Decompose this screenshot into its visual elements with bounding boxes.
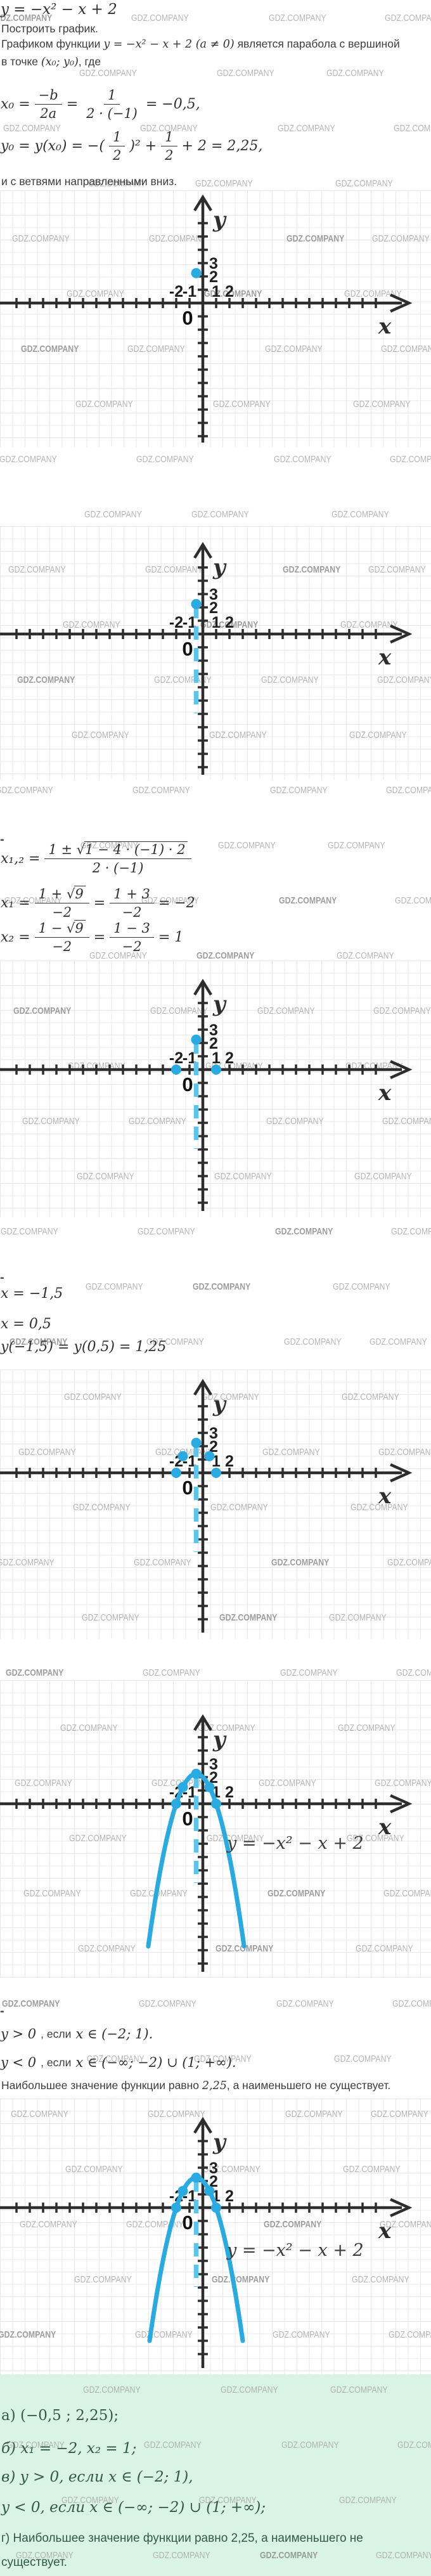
svg-text:3: 3: [209, 586, 218, 604]
graph-description-line: Графиком функции y = −x² − x + 2 (a ≠ 0)…: [1, 37, 400, 51]
extra-x-right: x = 0,5: [1, 1316, 51, 1332]
svg-text:y: y: [212, 555, 227, 580]
sqrt-prefix: 1 ± √: [48, 842, 85, 857]
fraction-denominator: −2: [48, 903, 75, 920]
fraction-numerator: 1: [161, 129, 177, 146]
plot-vertex: yx0-2-11223: [0, 190, 431, 447]
task-line: Построить график.: [1, 22, 98, 36]
formula-x12-lhs: x₁,₂ =: [1, 851, 40, 867]
svg-text:x: x: [378, 645, 392, 670]
graph-description-math: y = −x² − x + 2 (a ≠ 0): [103, 38, 234, 51]
answer-g-line-2: существует.: [1, 2556, 67, 2570]
fraction: 12 · (−1): [82, 87, 141, 121]
svg-text:x: x: [378, 1815, 392, 1840]
fraction: 1 − √9 −2: [35, 921, 89, 954]
svg-text:2: 2: [225, 614, 234, 631]
fraction: 12: [109, 129, 125, 163]
svg-text:y: y: [212, 2130, 227, 2155]
max-value-text-1: Наибольшее значение функции равно: [1, 2079, 202, 2092]
svg-text:y = −x² − x + 2: y = −x² − x + 2: [226, 1834, 364, 1853]
graph-description-text-2: является парабола с вершиной: [235, 37, 400, 50]
answer-a: а) (−0,5 ; 2,25);: [1, 2407, 119, 2424]
answer-v: в) y > 0, если x ∈ (−2; 1),: [1, 2469, 193, 2485]
fraction-numerator: 1 − 3: [110, 921, 154, 938]
graph-description-text-1: Графиком функции: [1, 37, 103, 50]
svg-text:-1: -1: [183, 283, 196, 301]
plot-extra-points: yx0-2-11223: [0, 1369, 431, 1639]
sqrt-radicand: 1 − 4 · (−1) · 2: [84, 841, 187, 857]
vertex-point-line: в точке (x₀; y₀), где: [1, 55, 101, 68]
extra-x-left: x = −1,5: [1, 1286, 63, 1302]
vertex-point-math: (x₀; y₀): [41, 56, 79, 68]
sqrt-radicand: 9: [74, 920, 85, 936]
svg-text:3: 3: [209, 1756, 218, 1773]
svg-text:x: x: [378, 2218, 392, 2244]
inequality: y < 0: [1, 2055, 36, 2070]
formula-x0-lhs: x₀ =: [1, 96, 30, 112]
plot-roots: yx0-2-11223: [0, 961, 431, 1217]
fraction: −b2a: [35, 87, 62, 121]
plot-parabola: yx0-2-11223y = −x² − x + 2: [0, 1680, 431, 1978]
fraction-denominator: 2 · (−1): [89, 859, 148, 876]
answer-v2: y < 0, если x ∈ (−∞; −2) ∪ (1; +∞);: [1, 2499, 266, 2516]
fraction: 1 ± √1 − 4 · (−1) · 2 2 · (−1): [44, 842, 191, 876]
svg-text:3: 3: [209, 1425, 218, 1442]
svg-text:0: 0: [182, 1073, 193, 1096]
svg-text:y: y: [212, 1392, 227, 1417]
extra-y-values: y(−1,5) = y(0,5) = 1,25: [1, 1339, 166, 1355]
plot-final: yx0-2-11223y = −x² − x + 2: [0, 2099, 431, 2374]
svg-text:y: y: [212, 207, 227, 233]
fraction: 1 + 3−2: [110, 886, 154, 920]
fraction-numerator: 1: [104, 87, 120, 105]
svg-text:2: 2: [225, 283, 234, 301]
svg-text:y: y: [212, 1727, 227, 1752]
formula-x1-lhs: x₁ =: [1, 895, 30, 911]
content-layer: y = −x² − x + 2 Построить график. График…: [0, 0, 431, 2576]
sqrt-radicand: 9: [74, 886, 85, 902]
fraction-denominator: −2: [48, 938, 75, 954]
if-word: , если: [41, 2028, 71, 2041]
svg-text:0: 0: [182, 1808, 193, 1830]
equals-sign: =: [94, 895, 105, 911]
branches-line: и с ветвями направленными вниз.: [1, 175, 177, 188]
fraction-numerator: 1 − √9: [35, 921, 89, 938]
fraction-numerator: −b: [35, 87, 62, 105]
svg-text:2: 2: [225, 1453, 234, 1470]
equation-title: y = −x² − x + 2: [1, 1, 117, 18]
formula-x12: x₁,₂ = 1 ± √1 − 4 · (−1) · 2 2 · (−1): [1, 842, 191, 876]
svg-text:3: 3: [209, 2159, 218, 2177]
svg-text:2: 2: [225, 1049, 234, 1067]
svg-text:2: 2: [225, 1783, 234, 1801]
max-value-number: 2,25: [202, 2080, 227, 2092]
interval: x ∈ (−2; 1).: [75, 2026, 153, 2042]
fraction-denominator: −2: [119, 938, 146, 954]
svg-text:0: 0: [182, 638, 193, 660]
inequality: y > 0: [1, 2026, 36, 2042]
formula-x1: x₁ = 1 + √9 −2 = 1 + 3−2 = −2: [1, 886, 195, 920]
max-value-text-2: , а наименьшего не существует.: [227, 2079, 390, 2092]
formula-y0: y₀ = y(x₀) = −( 12 )² + 12 + 2 = 2,25,: [1, 129, 262, 163]
svg-text:3: 3: [209, 255, 218, 273]
fraction: 12: [161, 129, 177, 163]
svg-text:-2: -2: [169, 1049, 183, 1067]
sqrt-prefix: 1 − √: [39, 921, 75, 936]
vertex-point-text-2: , где: [79, 55, 101, 68]
fraction: 1 + √9 −2: [35, 886, 89, 920]
interval: x ∈ (−∞; −2) ∪ (1; +∞).: [75, 2055, 236, 2070]
list-dash: -: [0, 1271, 4, 1285]
formula-x2: x₂ = 1 − √9 −2 = 1 − 3−2 = 1: [1, 921, 183, 954]
answer-b: б) x₁ = −2, x₂ = 1;: [1, 2440, 136, 2457]
fraction-denominator: 2a: [36, 105, 60, 121]
equals-sign: =: [94, 929, 105, 945]
svg-text:0: 0: [182, 2211, 193, 2234]
positive-interval-line: y > 0, если x ∈ (−2; 1).: [1, 2026, 153, 2042]
fraction-denominator: 2: [161, 146, 177, 163]
sqrt-prefix: 1 + √: [39, 886, 75, 902]
svg-text:x: x: [378, 1080, 392, 1106]
formula-x2-lhs: x₂ =: [1, 929, 30, 945]
fraction-numerator: 1 ± √1 − 4 · (−1) · 2: [44, 842, 191, 859]
svg-text:x: x: [378, 1484, 392, 1509]
fraction-denominator: −2: [119, 903, 146, 920]
svg-text:2: 2: [225, 2187, 234, 2205]
plot-symmetry-axis: yx0-2-11223: [0, 526, 431, 780]
svg-text:-2: -2: [169, 614, 183, 631]
fraction-numerator: 1 + 3: [110, 886, 154, 903]
negative-interval-line: y < 0, если x ∈ (−∞; −2) ∪ (1; +∞).: [1, 2055, 236, 2070]
svg-text:3: 3: [209, 1021, 218, 1039]
formula-y0-part-2: )² +: [129, 138, 157, 154]
svg-text:x: x: [378, 314, 392, 339]
solution-page: GDZ.COMPANYGDZ.COMPANYGDZ.COMPANYGDZ.COM…: [0, 0, 431, 2576]
fraction-denominator: 2: [109, 146, 125, 163]
formula-x2-result: = 1: [158, 929, 183, 945]
if-word: , если: [41, 2056, 71, 2069]
svg-text:y: y: [212, 992, 227, 1017]
formula-x1-result: = −2: [158, 895, 195, 911]
svg-text:-2: -2: [169, 283, 183, 301]
list-dash: -: [0, 2004, 4, 2019]
fraction-denominator: 2 · (−1): [82, 105, 141, 121]
fraction-numerator: 1: [109, 129, 125, 146]
svg-text:0: 0: [182, 307, 193, 329]
formula-y0-part-3: + 2 = 2,25,: [182, 138, 263, 154]
vertex-point-text-1: в точке: [1, 55, 41, 68]
answer-g-line-1: г) Наибольшее значение функции равно 2,2…: [1, 2532, 363, 2546]
equals-sign: =: [67, 96, 78, 112]
formula-x0-result: = −0,5,: [146, 96, 200, 112]
formula-x0: x₀ = −b2a = 12 · (−1) = −0,5,: [1, 87, 200, 121]
svg-text:y = −x² − x + 2: y = −x² − x + 2: [226, 2241, 364, 2260]
fraction: 1 − 3−2: [110, 921, 154, 954]
fraction-numerator: 1 + √9: [35, 886, 89, 903]
formula-y0-part-1: y₀ = y(x₀) = −(: [1, 138, 105, 154]
max-value-line: Наибольшее значение функции равно 2,25, …: [1, 2079, 390, 2092]
svg-text:0: 0: [182, 1477, 193, 1499]
